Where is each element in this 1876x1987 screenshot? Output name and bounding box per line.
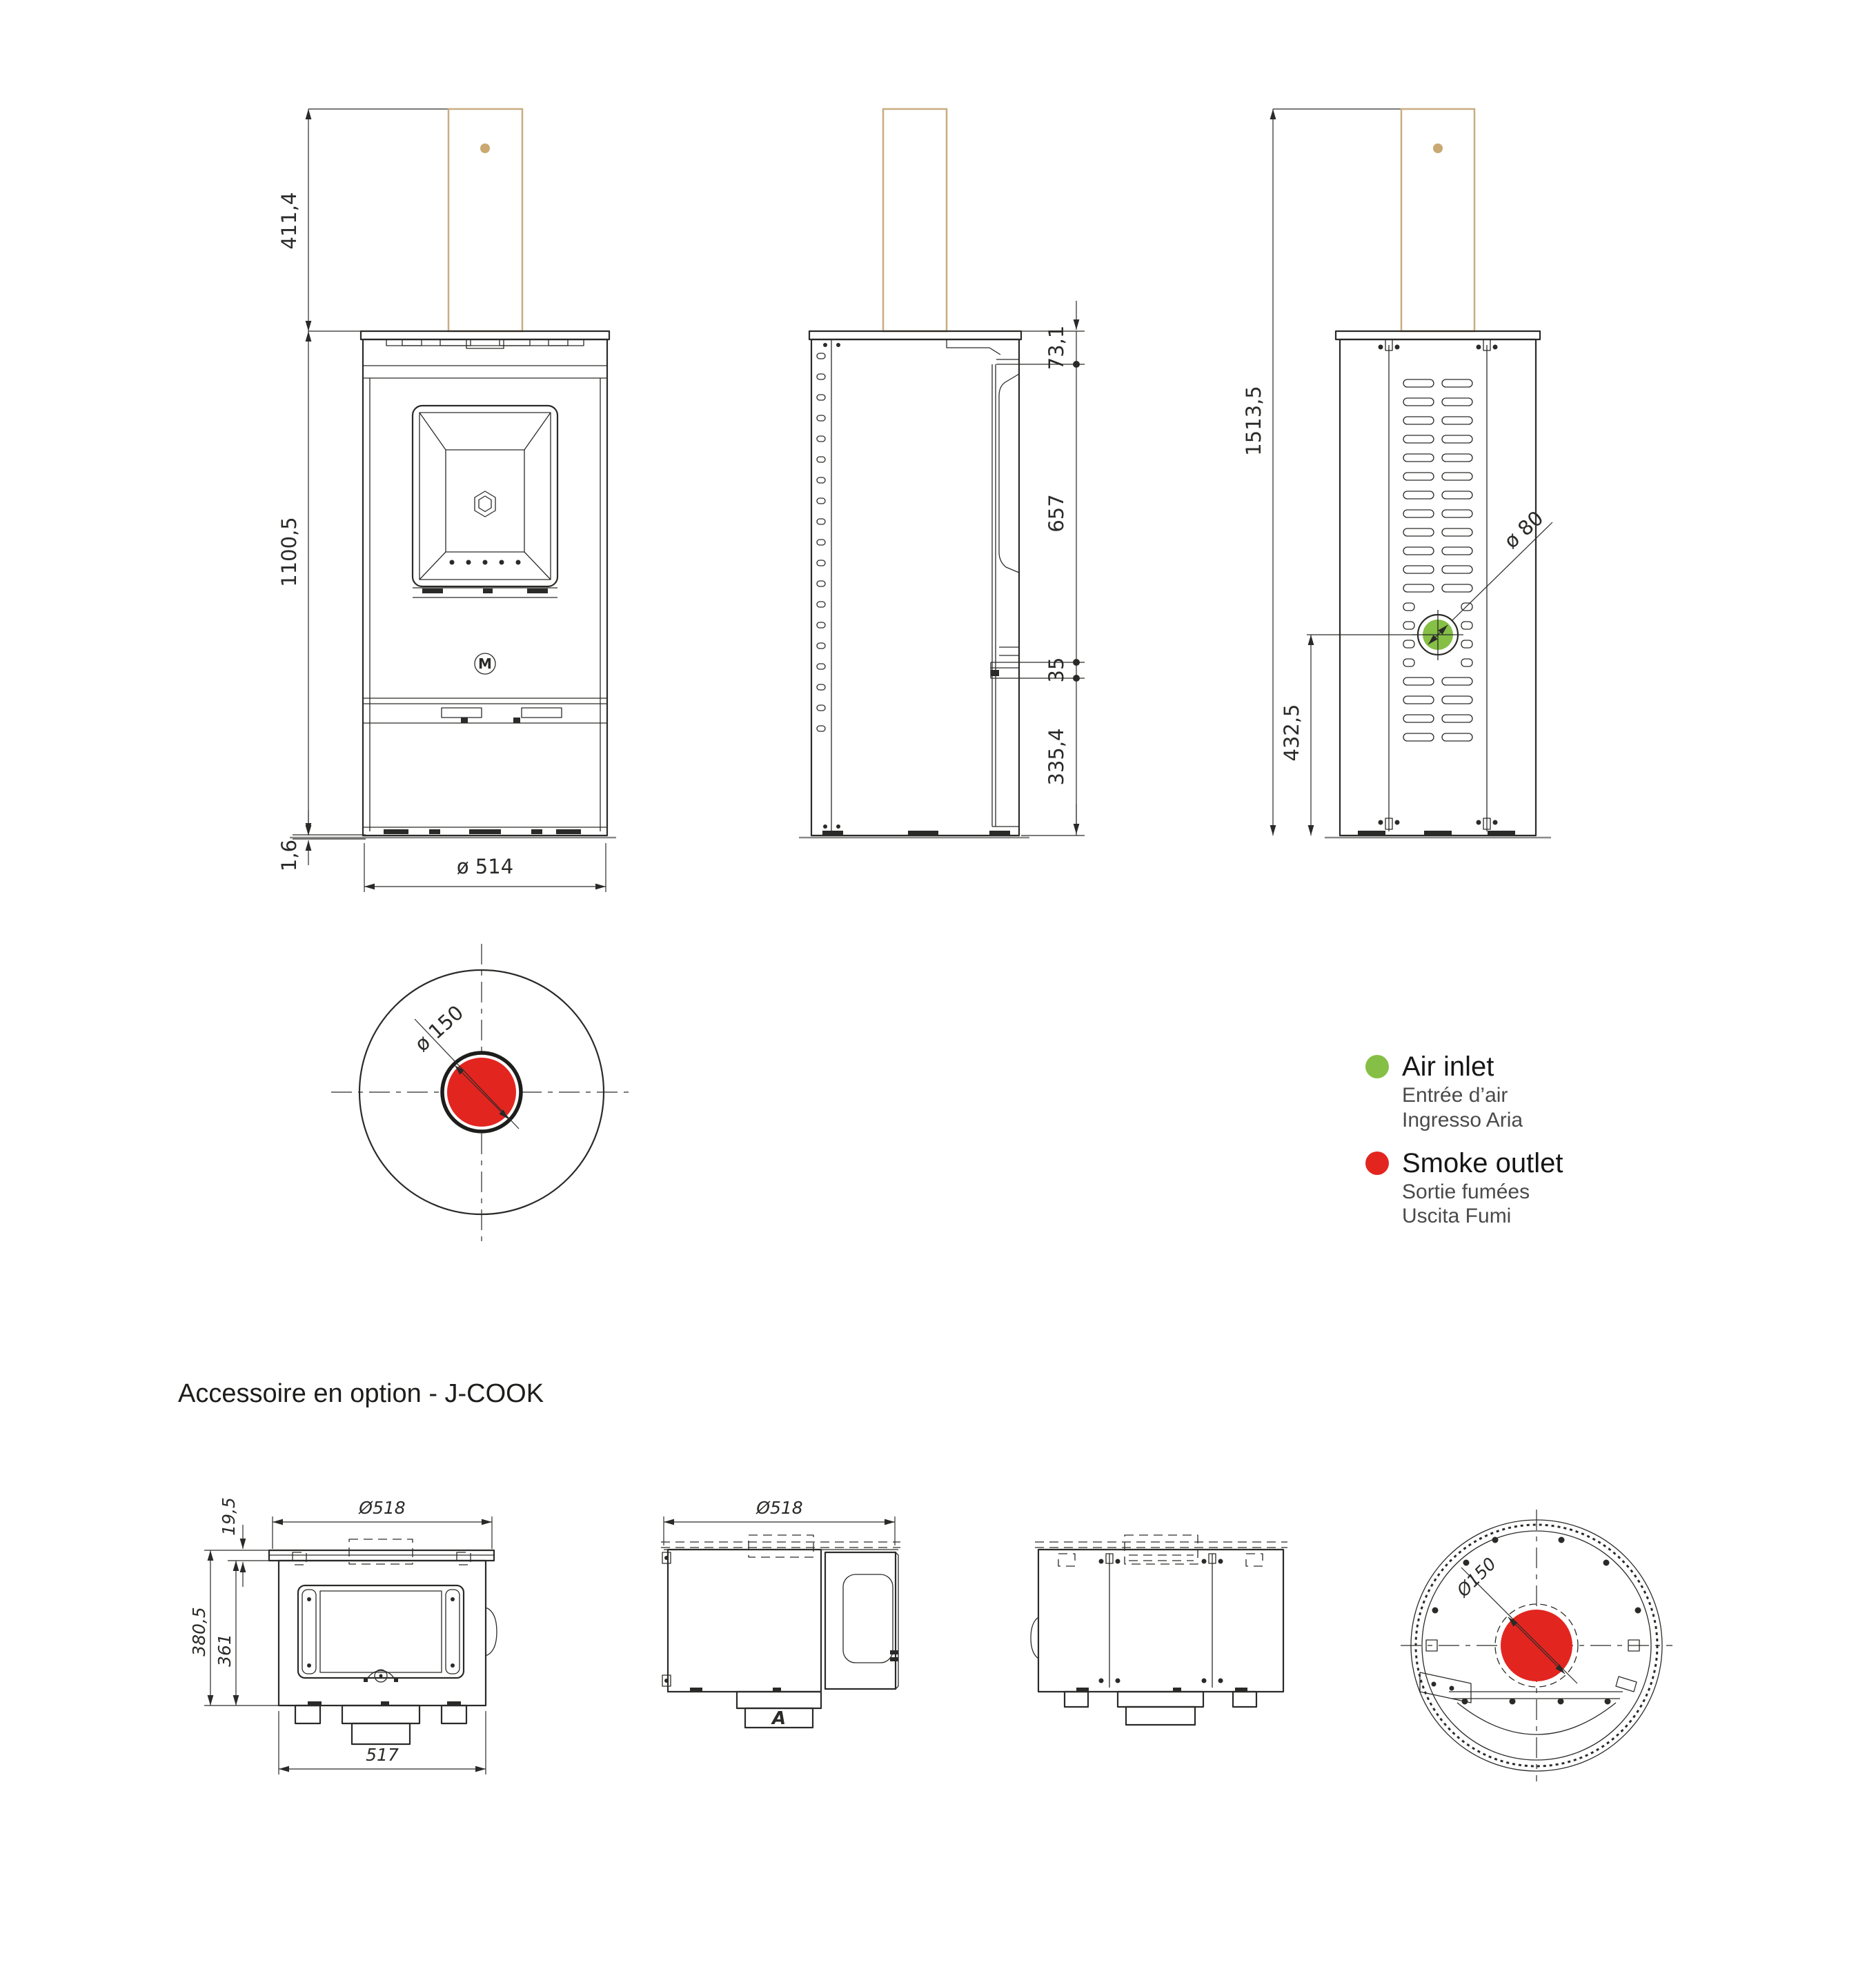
flue-pipe-front (448, 109, 522, 331)
jcook-side-view: Ø518 A (661, 1498, 900, 1729)
dim-label-411-4: 411,4 (277, 192, 301, 249)
jcook-top-bracket (1420, 1672, 1637, 1734)
dim-label-335-4: 335,4 (1045, 728, 1068, 785)
section-label-a: A (771, 1708, 786, 1729)
jcook-top-view: Ø150 (1401, 1510, 1672, 1781)
legend-smoke-outlet-label: Smoke outlet (1402, 1148, 1563, 1178)
dim-air-inlet-height: 432,5 (1280, 635, 1418, 836)
flue-pin-dot (480, 144, 490, 153)
dim-label-19-5: 19,5 (219, 1497, 239, 1536)
dim-label-432-5: 432,5 (1280, 704, 1303, 761)
stove-back-body: ø 80 (1325, 331, 1552, 838)
stove-side-view: 73,1 657 35 335,4 (799, 109, 1085, 838)
legend: Air inlet Entrée d’air Ingresso Aria Smo… (1365, 1051, 1563, 1227)
side-window-edge (999, 374, 1019, 573)
legend-air-inlet-label: Air inlet (1402, 1051, 1494, 1082)
dim-total-height: 1513,5 (1242, 109, 1401, 836)
dim-jcook-top-diameter-front: Ø518 (273, 1498, 492, 1549)
dim-base-thickness: 1,6 (277, 810, 366, 871)
accessory-heading: Accessoire en option - J-COOK (178, 1379, 544, 1408)
stove-back-view: 1513,5 (1242, 109, 1552, 838)
flue-pin-dot-back (1433, 144, 1443, 153)
dim-label-1513-5: 1513,5 (1242, 386, 1265, 455)
dim-label-514: ø 514 (457, 855, 513, 878)
flame-logo-icon (475, 491, 495, 517)
dim-label-1100-5: 1100,5 (277, 517, 301, 586)
dim-label-657: 657 (1045, 494, 1068, 532)
dim-jcook-total-height: 380,5 (189, 1550, 279, 1706)
dim-label-518-front: Ø518 (358, 1498, 405, 1518)
dim-chimney-height: 411,4 (277, 109, 448, 331)
jcook-back-view (1031, 1535, 1287, 1725)
dim-label-518-side: Ø518 (756, 1498, 802, 1518)
legend-smoke-outlet-label-fr: Sortie fumées (1402, 1180, 1530, 1203)
dim-base-diameter: ø 514 (364, 843, 606, 892)
dim-body-height: 1100,5 (277, 331, 363, 836)
dim-jcook-width: 517 (279, 1711, 486, 1775)
stove-top-view: ø 150 (331, 944, 632, 1242)
side-handle-bump (486, 1608, 497, 1656)
legend-air-inlet-label-it: Ingresso Aria (1402, 1109, 1523, 1131)
flue-pipe-back (1401, 109, 1474, 331)
air-inlet-legend-dot (1365, 1055, 1389, 1078)
side-dimension-chain: 73,1 657 35 335,4 (1019, 301, 1085, 836)
back-vent-slots (1403, 379, 1472, 741)
back-handle-bump (1031, 1617, 1038, 1659)
stove-front-view: 411,4 1100,5 (277, 109, 616, 892)
technical-drawing-page: 411,4 1100,5 (0, 0, 1876, 1987)
brand-logo-icon: M (475, 653, 495, 674)
jcook-oven-door (298, 1585, 464, 1682)
dim-jcook-top-diameter-side: Ø518 (664, 1498, 895, 1545)
legend-air-inlet-label-fr: Entrée d’air (1402, 1084, 1508, 1107)
dim-label-380-5: 380,5 (189, 1607, 209, 1657)
flue-pipe-side (883, 109, 947, 331)
dim-air-inlet-diameter: ø 80 (1452, 506, 1552, 621)
dim-label-150: ø 150 (410, 1000, 468, 1056)
smoke-outlet-legend-dot (1365, 1151, 1389, 1175)
dim-jcook-plate-thickness: 19,5 (204, 1497, 279, 1587)
dim-label-361: 361 (215, 1634, 235, 1667)
jcook-side-door (825, 1552, 898, 1689)
dim-label-73-1: 73,1 (1045, 326, 1068, 370)
dim-label-80: ø 80 (1499, 506, 1548, 553)
jcook-front-view: Ø518 (189, 1497, 497, 1775)
side-vent-slots (817, 353, 825, 731)
dim-jcook-body-height: 361 (215, 1561, 236, 1706)
dim-label-517: 517 (366, 1745, 399, 1765)
brand-logo-letter: M (478, 655, 492, 672)
drawing-canvas: 411,4 1100,5 (0, 0, 1876, 1987)
legend-smoke-outlet-label-it: Uscita Fumi (1402, 1205, 1511, 1227)
dim-label-35: 35 (1045, 658, 1068, 683)
stove-front-body: M (290, 331, 616, 838)
dim-label-1-6: 1,6 (277, 840, 301, 871)
